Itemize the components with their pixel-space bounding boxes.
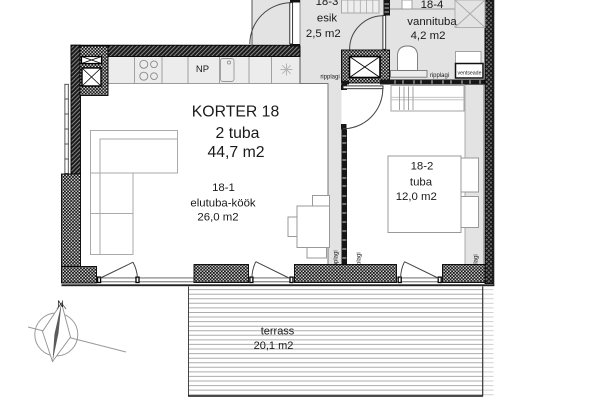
svg-text:18-1: 18-1 xyxy=(212,182,235,194)
svg-text:44,7 m2: 44,7 m2 xyxy=(207,144,264,161)
svg-text:4,2 m2: 4,2 m2 xyxy=(411,30,446,42)
svg-text:N: N xyxy=(57,299,64,309)
svg-text:elutuba-köök: elutuba-köök xyxy=(190,198,256,210)
svg-text:12,0 m2: 12,0 m2 xyxy=(396,191,437,203)
svg-text:18-3: 18-3 xyxy=(316,0,339,8)
svg-text:NP: NP xyxy=(196,64,209,75)
svg-text:tuba: tuba xyxy=(410,177,433,189)
svg-text:20,1 m2: 20,1 m2 xyxy=(254,340,294,352)
svg-text:KORTER 18: KORTER 18 xyxy=(192,104,280,121)
svg-text:esik: esik xyxy=(317,12,338,24)
svg-text:ventseade: ventseade xyxy=(458,71,482,77)
svg-text:vannituba: vannituba xyxy=(407,16,457,28)
svg-text:ripplagi: ripplagi xyxy=(430,73,449,79)
svg-text:18-2: 18-2 xyxy=(411,161,434,173)
svg-text:2 tuba: 2 tuba xyxy=(216,125,260,142)
svg-text:ripplagi: ripplagi xyxy=(320,75,339,81)
svg-text:18-4: 18-4 xyxy=(421,0,444,11)
svg-text:terrass: terrass xyxy=(261,326,295,338)
svg-text:2,5 m2: 2,5 m2 xyxy=(306,28,341,40)
svg-text:26,0 m2: 26,0 m2 xyxy=(197,211,238,223)
